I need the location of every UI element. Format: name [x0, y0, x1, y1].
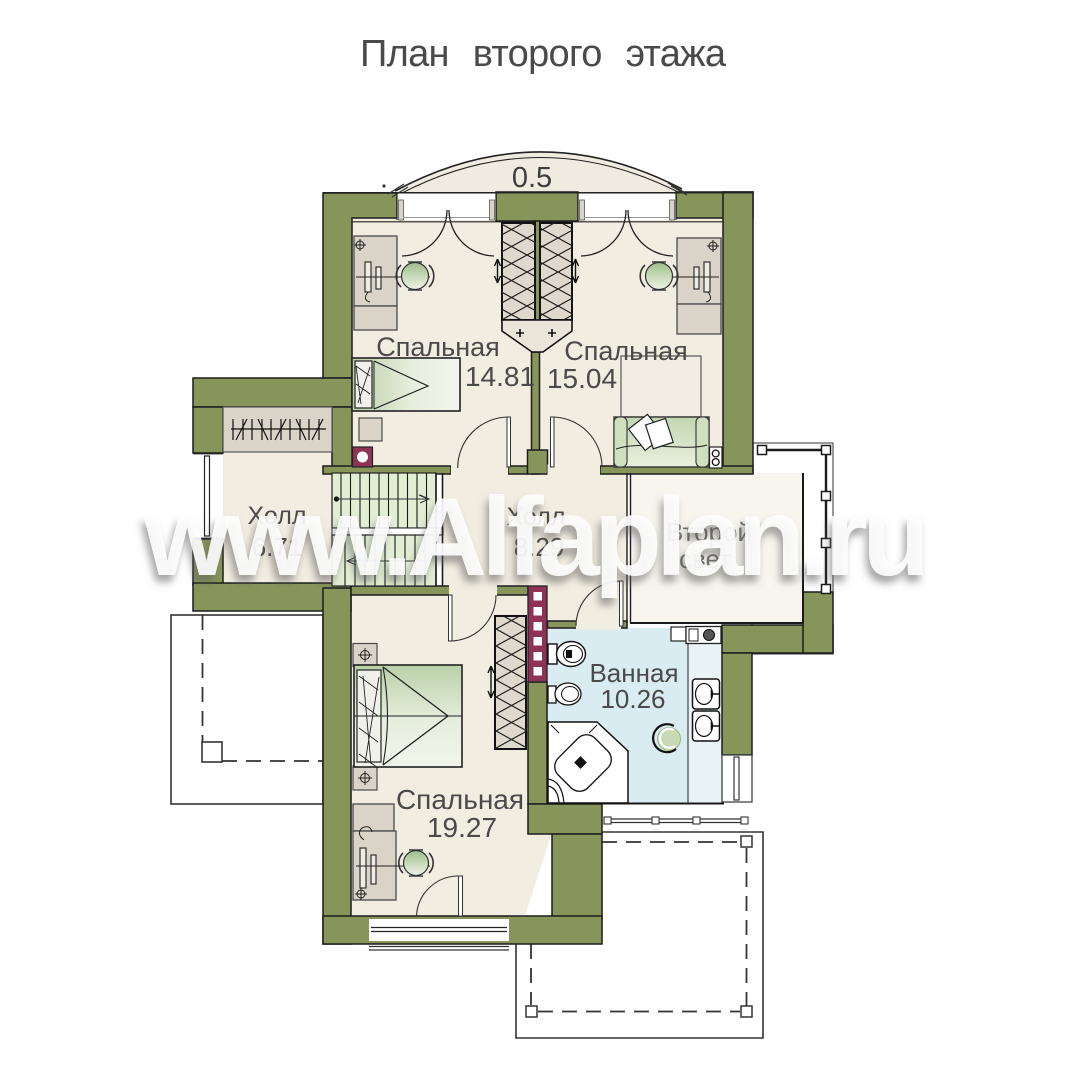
svg-text:Спальная: Спальная: [396, 784, 524, 815]
svg-text:15.04: 15.04: [547, 363, 617, 394]
svg-text:19.27: 19.27: [427, 812, 497, 843]
svg-text:План второго этажа: План второго этажа: [360, 33, 730, 75]
svg-text:0.5: 0.5: [512, 162, 552, 194]
svg-text:www.Alfaplan.ru: www.Alfaplan.ru: [143, 475, 930, 599]
svg-text:10.26: 10.26: [600, 684, 665, 714]
svg-text:Спальная: Спальная: [564, 336, 688, 366]
svg-text:Спальная: Спальная: [376, 332, 500, 362]
svg-text:14.81: 14.81: [465, 361, 535, 392]
